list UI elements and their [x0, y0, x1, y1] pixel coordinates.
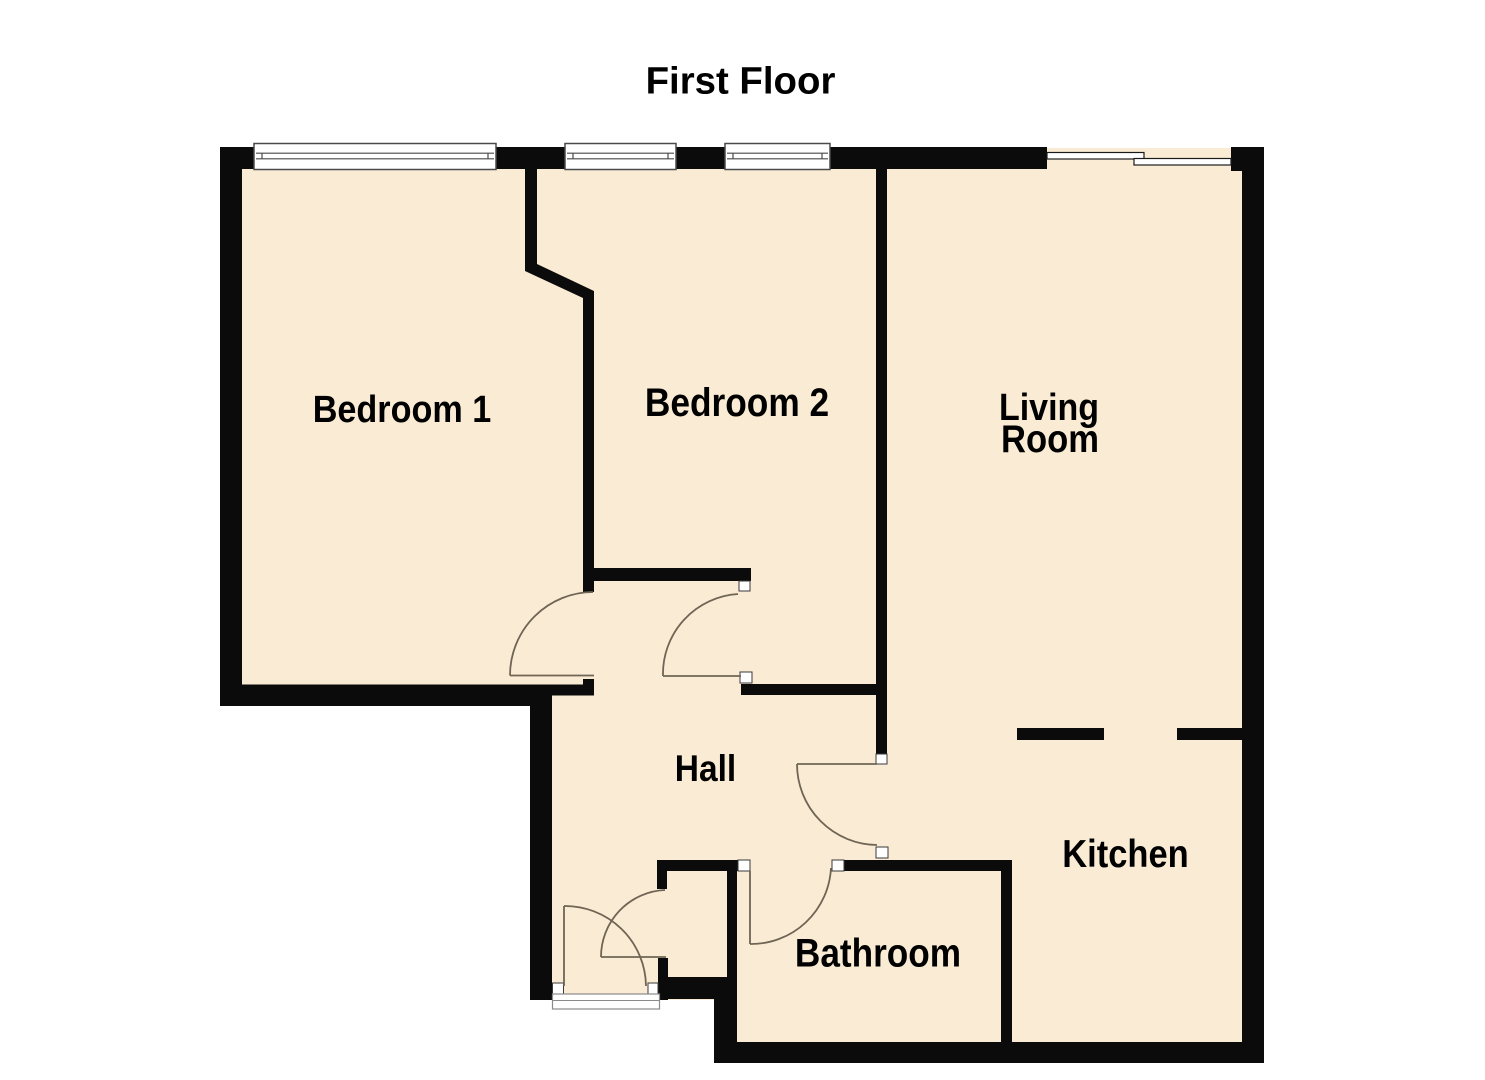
svg-text:Kitchen: Kitchen [1062, 832, 1188, 875]
svg-text:Bedroom 2: Bedroom 2 [645, 380, 829, 424]
svg-text:Room: Room [1001, 417, 1099, 460]
svg-text:First Floor: First Floor [646, 60, 836, 103]
svg-text:Bedroom 1: Bedroom 1 [313, 387, 492, 430]
svg-text:Bathroom: Bathroom [795, 931, 961, 975]
svg-text:Hall: Hall [675, 747, 736, 789]
